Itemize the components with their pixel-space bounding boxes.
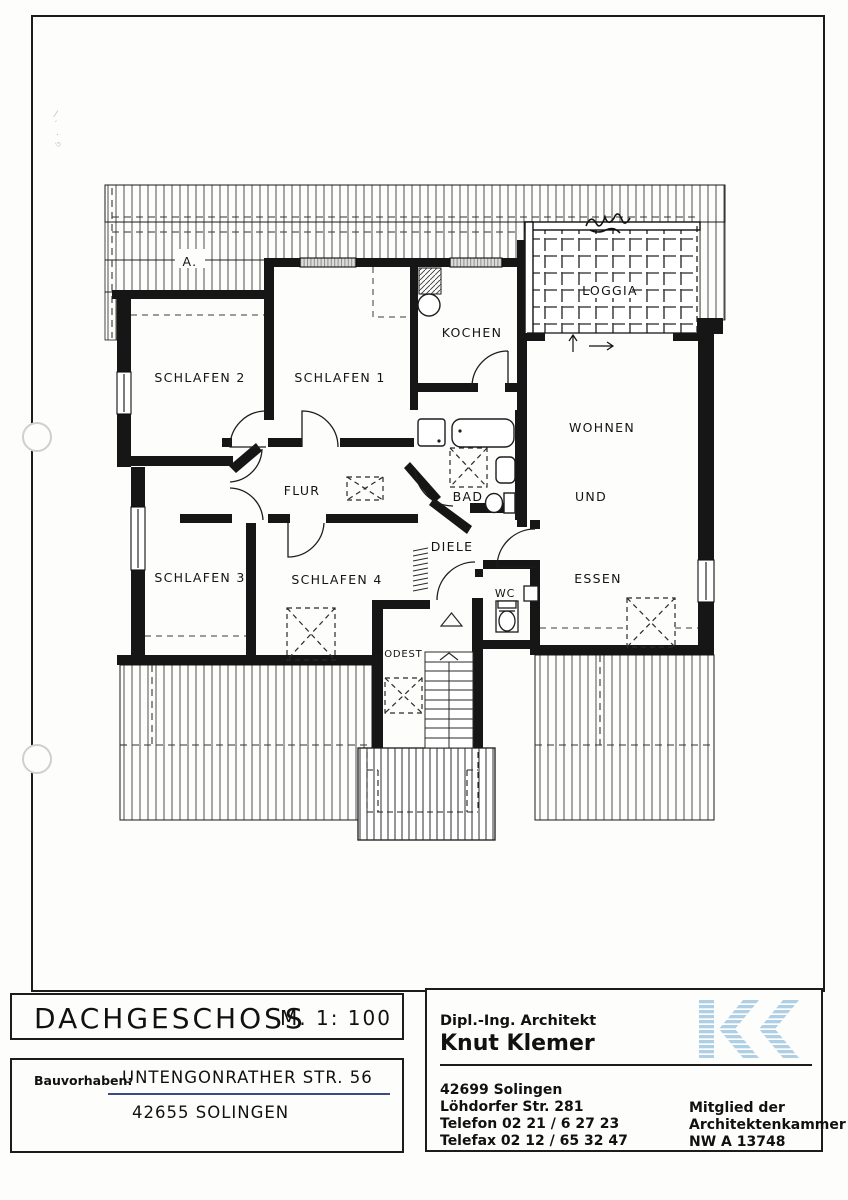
direction-triangle	[441, 613, 462, 626]
toilet-bowl	[486, 494, 503, 513]
drawing-sheet: ⁄′٠৩	[0, 0, 848, 1200]
label-und: UND	[575, 489, 607, 504]
architect-underline	[440, 1064, 812, 1066]
staircase	[413, 548, 473, 748]
roof-hatch-bottom-right	[535, 655, 714, 820]
membership-line: Mitglied der	[689, 1100, 846, 1117]
membership-line: Architektenkammer	[689, 1117, 846, 1134]
kitchen-fixtures	[418, 268, 441, 316]
label-schlafen3: SCHLAFEN 3	[154, 570, 245, 585]
street-underline	[108, 1093, 390, 1095]
architect-role: Dipl.-Ing. Architekt	[440, 1013, 596, 1029]
label-kochen: KOCHEN	[442, 325, 503, 340]
label-wohnen: WOHNEN	[569, 420, 635, 435]
membership-line: NW A 13748	[689, 1134, 846, 1151]
label-essen: ESSEN	[574, 571, 622, 586]
project-street: UNTENGONRATHER STR. 56	[122, 1068, 373, 1087]
floor-plan: A. LOGGIA	[0, 0, 848, 985]
label-loggia: LOGGIA	[582, 283, 638, 298]
label-flur: FLUR	[284, 483, 321, 498]
washbasin	[496, 457, 515, 483]
kk-logo	[699, 1000, 811, 1058]
wc-basin	[524, 586, 538, 601]
toilet-tank	[504, 493, 515, 513]
roof-dormer	[358, 748, 495, 840]
shower-tray	[418, 419, 445, 446]
architect-name: Knut Klemer	[440, 1031, 595, 1056]
address-line: Löhdorfer Str. 281	[440, 1099, 628, 1116]
project-city: 42655 SOLINGEN	[132, 1103, 289, 1122]
architect-address: 42699 Solingen Löhdorfer Str. 281 Telefo…	[440, 1082, 628, 1150]
label-wc: WC	[495, 587, 515, 600]
address-line: Telefax 02 12 / 65 32 47	[440, 1133, 628, 1150]
label-diele: DIELE	[431, 539, 474, 554]
title-box: DACHGESCHOSS M. 1: 100	[10, 993, 404, 1040]
drawing-scale: M. 1: 100	[280, 1006, 392, 1030]
label-schlafen1: SCHLAFEN 1	[294, 370, 385, 385]
project-label: Bauvorhaben:	[34, 1073, 132, 1088]
project-box: Bauvorhaben: UNTENGONRATHER STR. 56 4265…	[10, 1058, 404, 1153]
label-bad: BAD	[453, 489, 484, 504]
label-schlafen4: SCHLAFEN 4	[291, 572, 382, 587]
label-schlafen2: SCHLAFEN 2	[154, 370, 245, 385]
label-attic: A.	[183, 254, 198, 269]
chamber-membership: Mitglied der Architektenkammer NW A 1374…	[689, 1100, 846, 1151]
drawing-title: DACHGESCHOSS	[34, 1002, 306, 1035]
railing-hatch	[413, 548, 428, 591]
address-line: 42699 Solingen	[440, 1082, 628, 1099]
room-loggia: LOGGIA	[525, 214, 700, 352]
label-podest: PODEST	[377, 649, 422, 660]
bathtub	[452, 419, 514, 447]
room-labels: SCHLAFEN 2 SCHLAFEN 1 KOCHEN WOHNEN UND …	[154, 325, 635, 660]
address-line: Telefon 02 21 / 6 27 23	[440, 1116, 628, 1133]
roof-hatch-bottom-left	[120, 665, 372, 820]
architect-box: Dipl.-Ing. Architekt Knut Klemer 42699 S…	[425, 988, 823, 1152]
